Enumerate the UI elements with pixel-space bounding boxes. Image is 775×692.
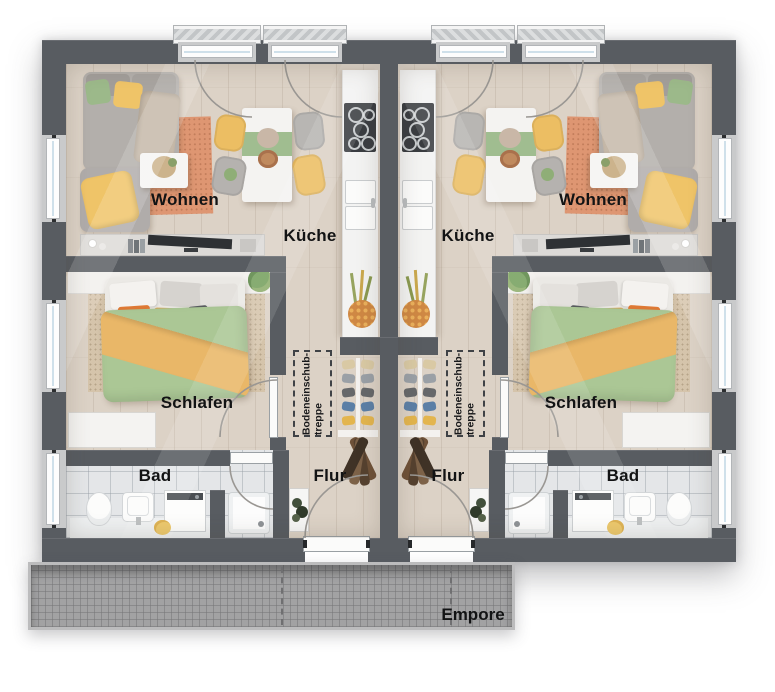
yellow-pillow — [635, 81, 666, 110]
window-glass — [46, 138, 60, 219]
burner — [417, 137, 430, 150]
yellow-throw — [79, 169, 141, 231]
kitchen-sink — [402, 206, 433, 230]
towel — [607, 520, 624, 535]
duvet — [100, 305, 249, 402]
roof-window — [268, 42, 342, 62]
wall-kitchen-hall-stub — [340, 337, 389, 355]
window-glass — [46, 303, 60, 389]
washbasin — [624, 492, 656, 522]
decor-box — [240, 239, 256, 252]
window-glass — [439, 45, 507, 58]
wall-bath-hall — [489, 450, 505, 538]
chair-plant — [224, 168, 237, 181]
apartment-unit: Bodeneinschub- treppe — [42, 40, 389, 562]
shoe-pair — [423, 373, 437, 383]
wall-bedroom-hall — [492, 437, 508, 450]
shower-drain — [514, 521, 520, 527]
empore-divider — [281, 567, 283, 625]
window — [712, 300, 736, 392]
room-label-bad: Bad — [607, 466, 640, 486]
book — [128, 239, 133, 253]
window-glass — [271, 45, 339, 58]
wall-living-bedroom — [492, 256, 712, 272]
table-plant — [499, 128, 521, 148]
bed-pillow — [575, 281, 619, 309]
decor-vase — [99, 243, 106, 250]
room-label-bad: Bad — [139, 466, 172, 486]
copper-bowl — [500, 150, 520, 168]
coat-rack-shelf — [338, 430, 378, 437]
room-label-wohnen: Wohnen — [559, 190, 627, 210]
book — [645, 239, 650, 253]
book — [134, 240, 139, 253]
shoe-pair — [360, 401, 374, 412]
window-glass — [718, 303, 732, 389]
dining-chair-yellow — [531, 113, 566, 153]
shoe-pair — [403, 401, 417, 412]
table-plant — [257, 128, 279, 148]
loft-ladder-label-line1: Bodeneinschub- — [301, 352, 313, 434]
machine-knob — [195, 495, 199, 499]
window-glass — [181, 45, 253, 58]
floor-plan: Bodeneinschub- treppe — [0, 0, 775, 692]
room-label-flur: Flur — [314, 466, 347, 486]
wall-living-bedroom — [66, 256, 286, 272]
entrance-door — [408, 536, 475, 552]
coat-rack-shelf — [400, 430, 440, 437]
shower — [508, 492, 550, 534]
tv-stand — [580, 248, 594, 252]
flower-bouquet — [402, 300, 430, 328]
burner — [361, 136, 376, 151]
shoe-rack-rail — [418, 358, 422, 432]
window — [712, 450, 736, 528]
window-glass — [718, 138, 732, 219]
window — [42, 450, 66, 528]
room-label-kueche: Küche — [442, 226, 495, 246]
shoe-pair — [342, 415, 356, 425]
shoe-pair — [404, 387, 418, 398]
loft-ladder-outline: Bodeneinschub- treppe — [293, 350, 332, 437]
machine-knob — [579, 495, 583, 499]
window — [712, 135, 736, 222]
wall-bath-hall — [273, 450, 289, 538]
burner — [414, 107, 430, 123]
roof-window — [522, 42, 600, 62]
orange-blanket — [528, 308, 677, 403]
shoe-pair — [423, 415, 437, 425]
yellow-throw — [637, 169, 699, 231]
tv-stand — [184, 248, 198, 252]
wall-bedroom-hall — [492, 272, 508, 375]
window-glass — [718, 453, 732, 525]
skylight-window — [432, 26, 514, 43]
wall-bath-top — [66, 450, 230, 466]
shoe-pair — [341, 401, 355, 412]
kitchen-sink — [345, 206, 376, 230]
room-label-kueche: Küche — [284, 226, 337, 246]
bed-pillow — [159, 281, 203, 309]
empore-gallery: Empore — [28, 562, 515, 630]
shoe-pair — [404, 415, 418, 425]
decor-vase — [681, 239, 690, 248]
wall-bedroom-hall — [270, 437, 286, 450]
decor-vase — [88, 239, 97, 248]
loft-ladder-label: Bodeneinschub- treppe — [454, 352, 477, 434]
room-label-wohnen: Wohnen — [151, 190, 219, 210]
decor-vase — [672, 243, 679, 250]
faucet — [637, 517, 642, 525]
roof-window — [178, 42, 256, 62]
wall-shower-stub — [210, 490, 225, 538]
dining-chair-yellow — [213, 113, 248, 153]
room-label-schlafen: Schlafen — [161, 393, 233, 413]
bathroom-door — [505, 452, 548, 464]
window-glass — [525, 45, 597, 58]
burner — [403, 109, 415, 121]
roof-window — [436, 42, 510, 62]
burner — [348, 137, 361, 150]
green-pillow — [666, 78, 693, 105]
shoe-pair — [422, 401, 436, 412]
toilet — [86, 492, 112, 526]
wall-bath-top — [548, 450, 712, 466]
faucet — [403, 198, 407, 208]
faucet — [371, 198, 375, 208]
shoe-pair — [341, 359, 355, 370]
shower-drain — [258, 521, 264, 527]
apartment-unit: Bodeneinschub- treppe — [389, 40, 736, 562]
decor-box — [522, 239, 538, 252]
skylight-window — [174, 26, 260, 43]
window-glass — [46, 453, 60, 525]
shoe-pair — [360, 359, 374, 370]
wall-bedroom-hall — [270, 272, 286, 375]
cooktop — [402, 103, 434, 152]
wall-bottom — [42, 538, 305, 562]
book — [140, 239, 145, 253]
shoe-rack-rail — [356, 358, 360, 432]
dining-chair-gray — [292, 111, 326, 152]
shoe-pair — [403, 359, 417, 370]
chair-plant — [541, 168, 554, 181]
basin-bowl — [629, 496, 651, 516]
shoe-pair — [342, 373, 356, 383]
plant-sprig — [168, 158, 177, 167]
green-pillow — [84, 78, 111, 105]
shoe-pair — [361, 373, 375, 383]
wall-bottom — [473, 538, 736, 562]
burner — [402, 136, 417, 151]
window — [42, 135, 66, 222]
duvet — [528, 305, 677, 402]
shoe-pair — [422, 359, 436, 370]
shoe-pair — [361, 387, 375, 398]
toilet — [666, 492, 692, 526]
loft-ladder-label-line2: treppe — [313, 352, 325, 434]
faucet — [136, 517, 141, 525]
shoe-pair — [404, 373, 418, 383]
wall-center — [389, 40, 398, 562]
bathroom-door — [230, 452, 273, 464]
empore-label: Empore — [441, 605, 504, 625]
basin-bowl — [127, 496, 149, 516]
wall-center — [380, 40, 389, 562]
skylight-window — [264, 26, 346, 43]
flower-bouquet — [348, 300, 376, 328]
room-label-schlafen: Schlafen — [545, 393, 617, 413]
copper-bowl — [258, 150, 278, 168]
wardrobe — [622, 412, 710, 448]
entrance-door — [303, 536, 370, 552]
bedroom-door — [269, 377, 278, 438]
bedroom-door — [500, 377, 509, 438]
window — [42, 300, 66, 392]
room-label-flur: Flur — [432, 466, 465, 486]
skylight-window — [518, 26, 604, 43]
shoe-pair — [342, 387, 356, 398]
wall-kitchen-hall-stub — [389, 337, 438, 355]
book — [639, 240, 644, 253]
loft-ladder-label-line2: treppe — [466, 352, 478, 434]
hall-plant — [292, 514, 300, 522]
wall-shower-stub — [553, 490, 568, 538]
towel — [154, 520, 171, 535]
plant-sprig — [601, 158, 610, 167]
burner — [363, 109, 375, 121]
shower — [228, 492, 270, 534]
wardrobe — [68, 412, 156, 448]
cooktop — [344, 103, 376, 152]
loft-ladder-label: Bodeneinschub- treppe — [301, 352, 324, 434]
dining-chair-gray — [452, 111, 486, 152]
hall-plant — [478, 514, 486, 522]
orange-blanket — [100, 308, 249, 403]
shoe-pair — [423, 387, 437, 398]
book — [633, 239, 638, 253]
shoe-pair — [361, 415, 375, 425]
burner — [348, 107, 364, 123]
washbasin — [122, 492, 154, 522]
loft-ladder-outline: Bodeneinschub- treppe — [446, 350, 485, 437]
